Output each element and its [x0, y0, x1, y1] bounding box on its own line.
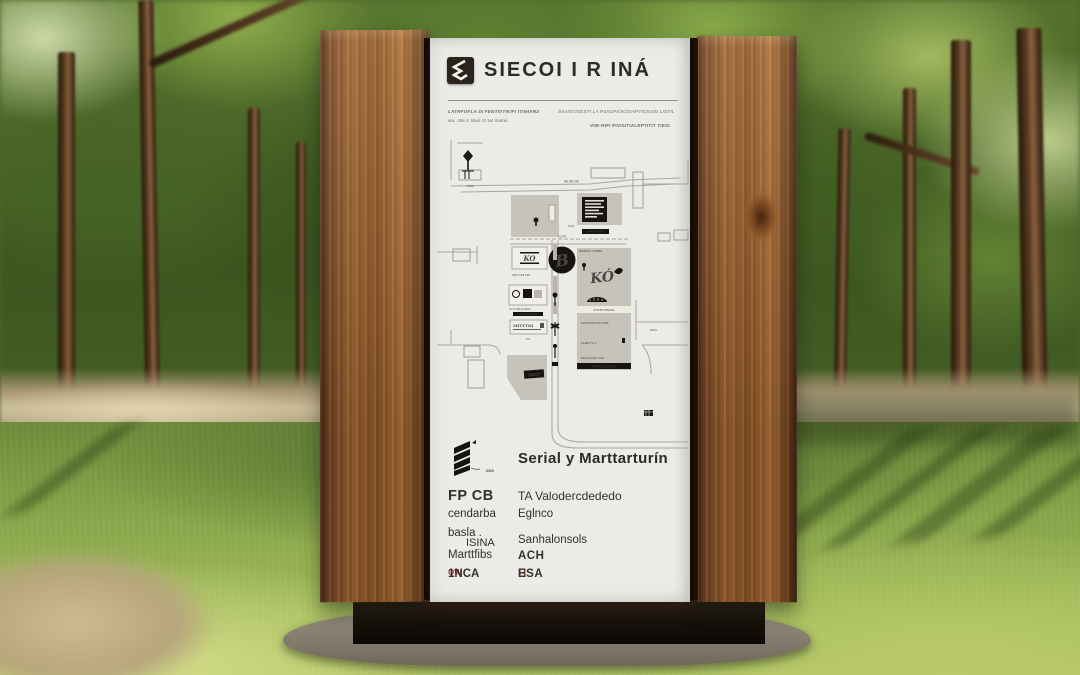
- directory-entry: ACH: [518, 550, 544, 562]
- meta-text: SIIAISTIDESTI LA PSIIGPIOIGSIAPTIGIGIID …: [558, 108, 675, 116]
- map-svg: LINIA SE SE DE CI/A IMPA P: [430, 134, 690, 468]
- svg-text:CRO JUNI KIAI: CRO JUNI KIAI: [512, 273, 530, 277]
- svg-text:SE SE DE: SE SE DE: [564, 180, 579, 184]
- svg-text:MITTTKI: MITTTKI: [513, 323, 533, 328]
- svg-text:CLTIP: CLTIP: [558, 235, 566, 239]
- svg-text:MILIS RIVEY ILIAL: MILIS RIVEY ILIAL: [581, 356, 605, 360]
- svg-text:CHOSTIPIOTIS TIPIS: CHOSTIPIOTIS TIPIS: [581, 321, 609, 325]
- wood-panel-right: [697, 36, 797, 603]
- building-block-right: MOMBOLI I MIRIBA KÓ PIVILBOTOIGIDIS CHOS…: [577, 248, 631, 370]
- outlined-buildings: [453, 168, 688, 388]
- directory-entry: ISINA: [466, 537, 495, 549]
- svg-text:CACB PIGIL BIND: CACB PIGIL BIND: [518, 313, 538, 316]
- left-services-box: [509, 285, 547, 305]
- svg-text:LINIA: LINIA: [466, 184, 474, 188]
- poi-circle-icon: B: [549, 247, 576, 274]
- directory-entry: TA Valodercdededo: [518, 489, 622, 503]
- section-heading: Serial y Marttarturín: [518, 450, 668, 467]
- sign-title: SIECOI I R INÁ: [484, 59, 651, 82]
- section-legend-icon: [450, 440, 482, 476]
- small-building-icon: [644, 410, 653, 416]
- brand-logo-icon: [447, 57, 474, 84]
- mitt-box: MITTTKI: [510, 320, 547, 334]
- svg-text:tOI/A: tOI/A: [650, 328, 657, 332]
- directory-entry: FP CB: [448, 488, 494, 504]
- svg-text:mt OY BA Lunchirc: mt OY BA Lunchirc: [509, 307, 532, 311]
- entry-text: ESA: [518, 568, 543, 580]
- street-network: [437, 140, 688, 448]
- directory-entry: cendarba: [448, 508, 496, 520]
- legend-caption: ana: [486, 468, 494, 473]
- map-pin-icon: [462, 150, 474, 179]
- svg-text:MOMBOLI I MIRIBA: MOMBOLI I MIRIBA: [579, 249, 603, 253]
- map-legend-block: [577, 193, 622, 225]
- wood-panel-left: [320, 30, 430, 603]
- meta-text: VIIE-RIFI PIVISITIALEPTITIT TIESI: [590, 122, 670, 130]
- trapezoid-building: GEXX: [507, 355, 547, 400]
- svg-text:LILIEIKTIV 4: LILIEIKTIV 4: [581, 341, 597, 345]
- wood-knot: [735, 178, 787, 256]
- site-map: LINIA SE SE DE CI/A IMPA P: [430, 134, 690, 468]
- meta-text: LATRFOFLA DI FENTIVTIKIFI ITIIMAR2: [448, 108, 539, 116]
- header-divider: [448, 100, 678, 101]
- park-scene: SIECOI I R INÁ LATRFOFLA DI FENTIVTIKIFI…: [0, 0, 1080, 675]
- entry-text: 1NCA: [448, 568, 479, 580]
- ko-building: KO: [512, 247, 547, 269]
- svg-text:IMPA PICIEIGI: IMPA PICIEIGI: [587, 230, 604, 234]
- directory-entry: Eglnco: [518, 508, 553, 520]
- directory-entry: Marttfibs: [448, 549, 492, 561]
- sign-panel: SIECOI I R INÁ LATRFOFLA DI FENTIVTIKIFI…: [430, 38, 690, 602]
- svg-text:GEXX: GEXX: [528, 372, 540, 378]
- building-block: [511, 195, 559, 237]
- svg-text:CI/A: CI/A: [568, 224, 574, 228]
- svg-text:Tris: Tris: [526, 337, 531, 341]
- panel-gap-right: [689, 38, 698, 600]
- svg-text:KO: KO: [523, 254, 537, 263]
- directory-entry: Sanhalonsols: [518, 534, 587, 546]
- meta-text: wa. Jits A Stuli Jt tat mwtai: [448, 117, 508, 125]
- svg-text:PIVILBOTOIGIDIS: PIVILBOTOIGIDIS: [594, 309, 615, 312]
- svg-text:PIVISILIOIGEIYIEIV: PIVISILIOIGEIYIEIV: [592, 365, 616, 369]
